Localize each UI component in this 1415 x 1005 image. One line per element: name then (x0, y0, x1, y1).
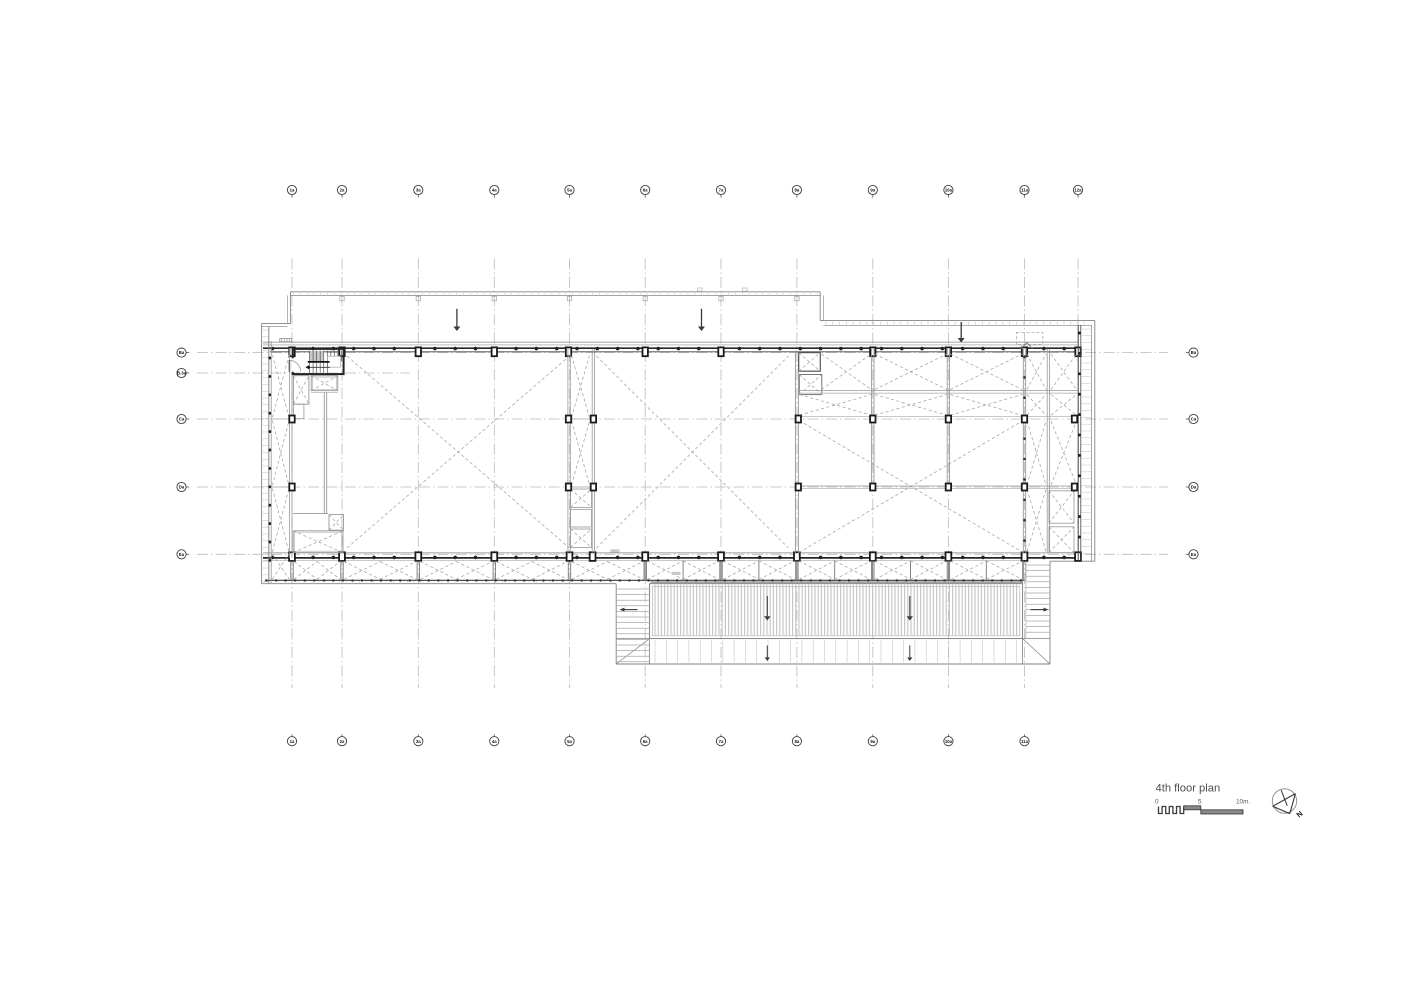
svg-text:7a: 7a (719, 188, 724, 193)
svg-text:4th floor plan: 4th floor plan (1156, 783, 1221, 795)
svg-text:12a: 12a (1074, 188, 1082, 193)
svg-text:11a: 11a (1021, 739, 1029, 744)
svg-text:5: 5 (1198, 799, 1202, 806)
svg-text:6a: 6a (643, 188, 648, 193)
svg-text:2a: 2a (340, 739, 345, 744)
svg-text:Ca: Ca (179, 417, 185, 422)
svg-text:3a: 3a (416, 188, 421, 193)
svg-text:3a: 3a (416, 739, 421, 744)
svg-text:Ba: Ba (1191, 350, 1197, 355)
svg-text:8a: 8a (795, 739, 800, 744)
svg-text:9a: 9a (870, 739, 875, 744)
svg-text:8a: 8a (795, 188, 800, 193)
svg-text:Ea: Ea (1191, 552, 1197, 557)
svg-text:0: 0 (1155, 799, 1159, 806)
svg-text:Da: Da (179, 485, 185, 490)
svg-text:B.3a: B.3a (177, 371, 187, 376)
svg-text:Da: Da (1191, 485, 1197, 490)
svg-text:Ca: Ca (1191, 417, 1197, 422)
svg-text:10a: 10a (945, 739, 953, 744)
svg-text:10m.: 10m. (1236, 799, 1250, 806)
svg-text:Ba: Ba (179, 350, 185, 355)
svg-text:4a: 4a (492, 739, 497, 744)
svg-text:5a: 5a (567, 188, 572, 193)
svg-text:6a: 6a (643, 739, 648, 744)
svg-text:Ea: Ea (179, 552, 185, 557)
svg-text:11a: 11a (1021, 188, 1029, 193)
svg-text:9a: 9a (870, 188, 875, 193)
svg-text:1a: 1a (290, 188, 295, 193)
svg-text:1a: 1a (290, 739, 295, 744)
svg-text:10a: 10a (945, 188, 953, 193)
svg-text:2a: 2a (340, 188, 345, 193)
svg-text:5a: 5a (567, 739, 572, 744)
svg-text:4a: 4a (492, 188, 497, 193)
svg-text:7a: 7a (719, 739, 724, 744)
